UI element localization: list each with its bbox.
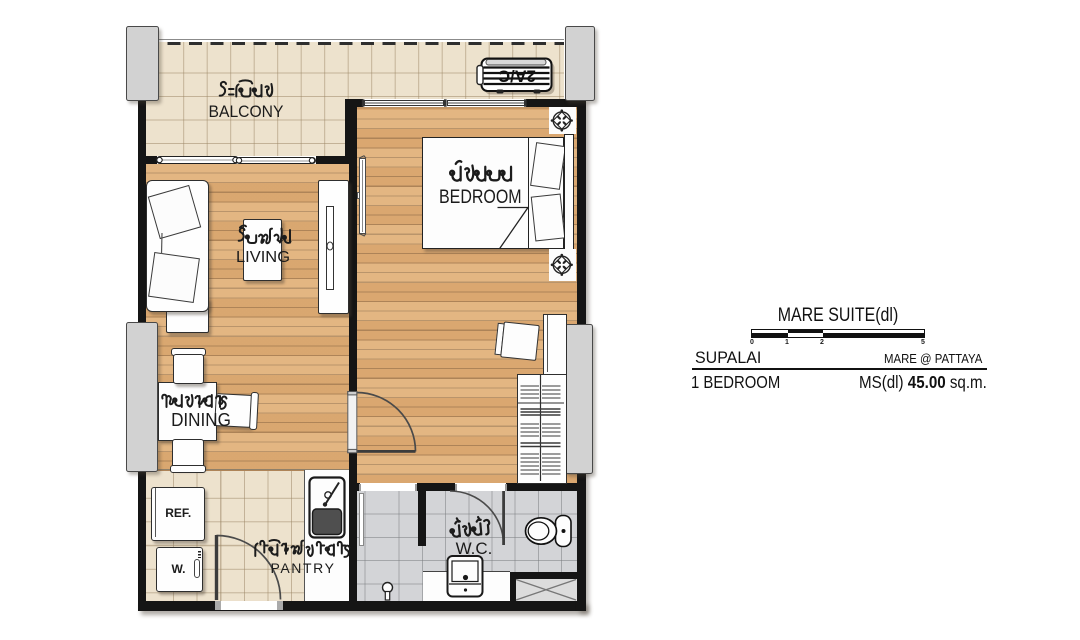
svg-text:2A/C: 2A/C: [498, 67, 536, 85]
